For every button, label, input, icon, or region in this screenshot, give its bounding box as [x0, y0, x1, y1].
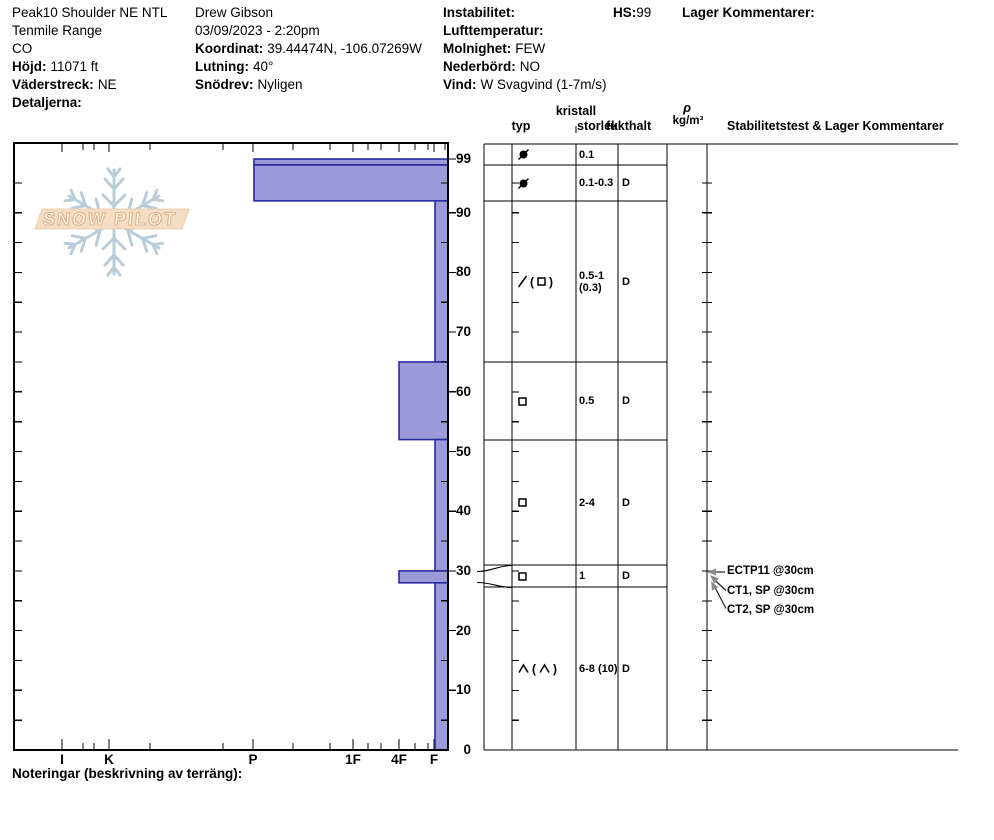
grain-symbol-square-icon [536, 276, 547, 287]
height-axis-label: 80 [444, 264, 471, 279]
grain-size-value: 0.1-0.3 [579, 177, 619, 189]
hardness-axis-label-P: P [238, 752, 268, 767]
layer-row-grain-type: () [517, 587, 575, 750]
snowpilot-logo-text: SNOW PILOT [35, 210, 185, 229]
paren-close: ) [553, 664, 557, 674]
dynamic-chart-content: 999080706050403020100IKP1F4FF0.10.1-0.3D… [0, 0, 994, 840]
grain-symbol-circle-slash-icon [517, 177, 530, 190]
layer-row-moisture: D [622, 362, 646, 440]
layer-row-moisture: D [622, 165, 646, 201]
stability-test-label: CT1, SP @30cm [727, 585, 814, 597]
height-axis-label: 50 [444, 444, 471, 459]
paren-open: ( [532, 664, 536, 674]
snowpilot-profile-page: Peak10 Shoulder NE NTL Tenmile Range CO … [0, 0, 994, 840]
layer-row-moisture: D [622, 587, 646, 750]
hardness-axis-label-K: K [94, 752, 124, 767]
layer-row-grain-type [517, 362, 575, 440]
layer-row-grain-size: 0.1 [579, 144, 619, 165]
stability-test-label: CT2, SP @30cm [727, 604, 814, 616]
grain-symbol-square-icon [517, 571, 528, 582]
layer-row-grain-size: 0.1-0.3 [579, 165, 619, 201]
layer-row-grain-size: 2-4 [579, 440, 619, 565]
height-axis-label: 60 [444, 384, 471, 399]
height-axis-label: 20 [444, 623, 471, 638]
layer-row-grain-type [517, 440, 575, 565]
height-axis-label: 99 [444, 151, 471, 166]
grain-symbol-square-icon [517, 396, 528, 407]
height-axis-label: 10 [444, 682, 471, 697]
layer-row-grain-size: 6-8 (10) [579, 587, 619, 750]
paren-close: ) [549, 277, 553, 287]
hardness-axis-label-1F: 1F [338, 752, 368, 767]
layer-row-grain-size: 0.5-1(0.3) [579, 201, 619, 362]
layer-row-grain-type [517, 165, 575, 201]
grain-size-value: 6-8 (10) [579, 663, 619, 675]
grain-symbol-square-icon [517, 497, 528, 508]
grain-size-value: 0.5 [579, 395, 619, 407]
grain-symbol-circle-slash-icon [517, 148, 530, 161]
layer-row-moisture: D [622, 201, 646, 362]
height-axis-label: 90 [444, 205, 471, 220]
grain-size-secondary: (0.3) [579, 282, 619, 294]
height-axis-label: 30 [444, 563, 471, 578]
grain-symbol-slash-icon [517, 275, 528, 288]
hardness-axis-label-F: F [419, 752, 449, 767]
stability-test-label: ECTP11 @30cm [727, 565, 814, 577]
layer-row-moisture: D [622, 565, 646, 587]
layer-row-grain-size: 1 [579, 565, 619, 587]
grain-symbol-caret-icon [517, 663, 530, 674]
layer-row-moisture: D [622, 440, 646, 565]
height-axis-label: 70 [444, 324, 471, 339]
grain-size-value: 0.5-1 [579, 270, 619, 282]
layer-row-grain-type [517, 144, 575, 165]
paren-open: ( [530, 277, 534, 287]
layer-row-grain-type [517, 565, 575, 587]
layer-row-grain-type: () [517, 201, 575, 362]
grain-size-value: 1 [579, 570, 619, 582]
hardness-axis-label-4F: 4F [384, 752, 414, 767]
grain-size-value: 0.1 [579, 149, 619, 161]
grain-symbol-caret-icon [538, 663, 551, 674]
height-axis-label: 40 [444, 503, 471, 518]
layer-row-grain-size: 0.5 [579, 362, 619, 440]
grain-size-value: 2-4 [579, 497, 619, 509]
hardness-axis-label-I: I [47, 752, 77, 767]
